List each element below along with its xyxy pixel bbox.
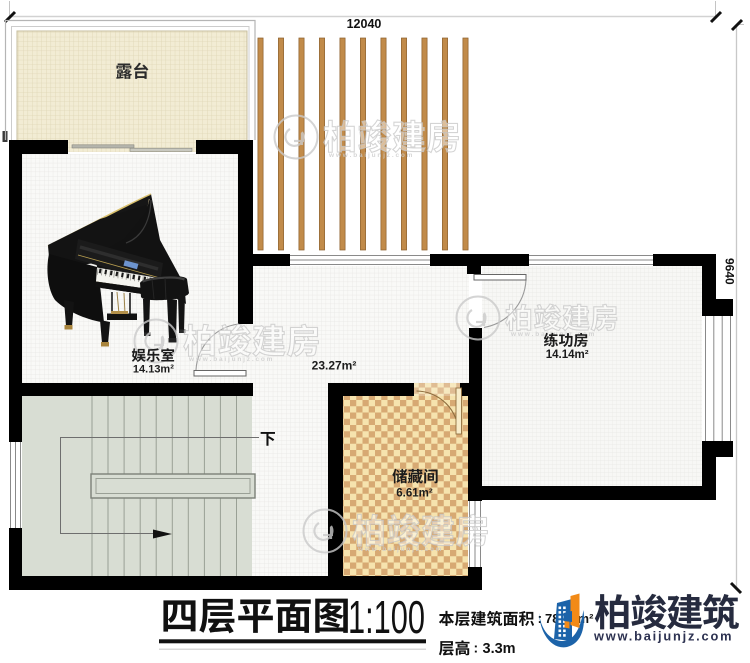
svg-text:1:100: 1:100 [348,591,425,643]
svg-text:23.27m²: 23.27m² [312,358,357,372]
svg-text:3.3m: 3.3m [483,641,516,657]
svg-text:w w w . b a i j u n j z . c o: w w w . b a i j u n j z . c o m [357,546,442,553]
svg-text:9640: 9640 [723,258,737,285]
svg-text:14.14m²: 14.14m² [546,349,589,361]
svg-text:12040: 12040 [347,17,382,31]
svg-text:www.baijunjz.com: www.baijunjz.com [593,629,733,644]
svg-text::: : [538,610,543,626]
svg-text:14.13m²: 14.13m² [133,363,174,375]
svg-text:w w w . b a i j u n j z . c o: w w w . b a i j u n j z . c o m [328,152,413,159]
svg-text:6.61m²: 6.61m² [396,487,433,499]
svg-text:w w w . b a i j u n j z . c o: w w w . b a i j u n j z . c o m [188,356,273,363]
svg-text::: : [474,640,479,656]
